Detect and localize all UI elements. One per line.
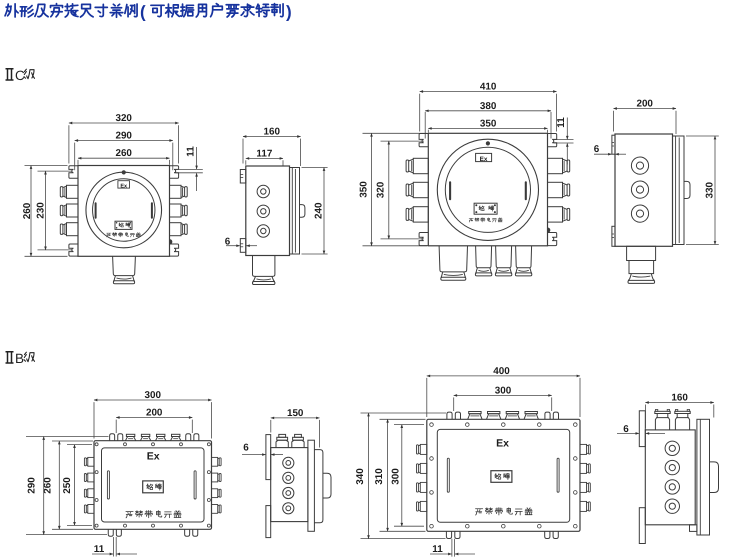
svg-text:290: 290 <box>27 477 38 494</box>
svg-text:B: B <box>15 351 24 366</box>
svg-text:6: 6 <box>243 442 249 453</box>
svg-text:380: 380 <box>480 101 497 112</box>
svg-text:Ex: Ex <box>120 184 128 190</box>
svg-text:240: 240 <box>313 202 324 219</box>
svg-text:200: 200 <box>146 408 163 419</box>
svg-text:260: 260 <box>22 202 33 219</box>
svg-text:290: 290 <box>115 131 132 142</box>
svg-text:260: 260 <box>43 477 54 494</box>
svg-text:117: 117 <box>256 148 272 159</box>
svg-text:150: 150 <box>287 408 304 419</box>
svg-text:300: 300 <box>145 390 162 401</box>
svg-text:320: 320 <box>375 181 386 198</box>
svg-text:11: 11 <box>556 117 567 128</box>
svg-text:Ex: Ex <box>147 450 160 462</box>
svg-text:350: 350 <box>480 118 497 129</box>
svg-text:11: 11 <box>432 544 443 555</box>
svg-text:260: 260 <box>115 148 132 159</box>
svg-text:250: 250 <box>62 477 73 494</box>
svg-text:11: 11 <box>185 146 196 157</box>
svg-text:230: 230 <box>36 202 47 219</box>
svg-text:310: 310 <box>374 468 385 485</box>
svg-text:Ex: Ex <box>496 438 509 450</box>
svg-text:160: 160 <box>671 393 688 404</box>
svg-text:200: 200 <box>636 99 653 110</box>
svg-text:Ex: Ex <box>480 156 488 163</box>
svg-text:300: 300 <box>390 468 401 485</box>
svg-text:300: 300 <box>495 385 512 396</box>
svg-text:410: 410 <box>480 82 497 93</box>
svg-text:C: C <box>15 68 25 83</box>
svg-text:160: 160 <box>264 127 281 138</box>
svg-text:340: 340 <box>355 468 366 485</box>
svg-text:330: 330 <box>704 181 715 198</box>
svg-text:(: ( <box>140 3 146 22</box>
svg-text:350: 350 <box>359 181 370 198</box>
svg-text:): ) <box>286 3 292 22</box>
svg-text:320: 320 <box>115 113 132 124</box>
svg-text:6: 6 <box>594 144 600 155</box>
svg-text:11: 11 <box>94 544 105 555</box>
svg-text:400: 400 <box>493 366 510 377</box>
